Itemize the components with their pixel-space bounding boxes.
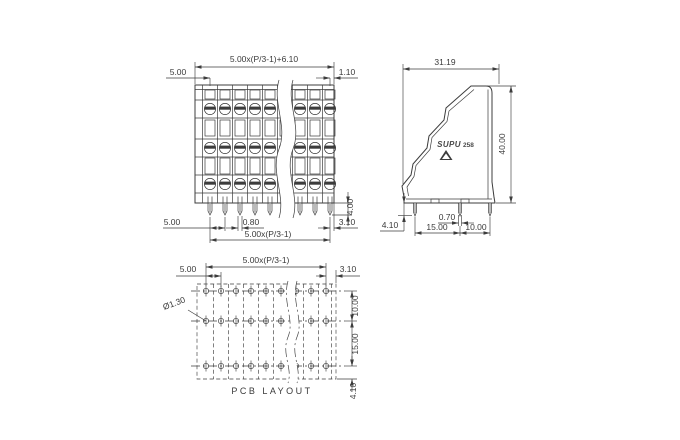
dim-depth: 31.19 xyxy=(434,57,456,67)
model-label: 258 xyxy=(463,142,474,149)
dim-row-gap-top: 10.00 xyxy=(350,295,360,317)
dim-hole-span: 5.00x(P/3-1) xyxy=(243,255,290,265)
pcb-hole xyxy=(218,316,223,327)
terminal-column xyxy=(219,90,230,215)
terminal-column xyxy=(294,90,305,215)
terminal-column xyxy=(309,90,320,215)
technical-drawing-sheet: 5.00x(P/3-1)+6.10 5.00 1.10 5.00 0.80 3.… xyxy=(0,0,680,440)
dim-pin-spacing-b: 10.00 xyxy=(465,222,487,232)
side-pin xyxy=(459,203,462,216)
dim-pin-span: 5.00x(P/3-1) xyxy=(245,229,292,239)
brand-label: SUPU xyxy=(437,140,461,149)
terminal-column xyxy=(264,90,275,215)
column-separators xyxy=(203,85,323,203)
side-pin xyxy=(489,203,492,216)
dim-pin-pitch: 5.00 xyxy=(164,217,181,227)
pcb-layout: 5.00x(P/3-1) 5.00 3.10 Ø1.30 10.00 15.00… xyxy=(161,255,360,399)
pcb-holes-row-2 xyxy=(203,316,328,327)
dim-pin-spacing-a: 15.00 xyxy=(426,222,448,232)
dim-pin-width: 0.80 xyxy=(243,217,260,227)
dim-pin-width-side: 0.70 xyxy=(439,212,456,222)
pcb-layout-title: PCB LAYOUT xyxy=(231,386,312,396)
dim-bottom-margin: 4.10 xyxy=(348,382,358,399)
dim-left-margin: 5.00 xyxy=(170,67,187,77)
pcb-dimensions: 5.00x(P/3-1) 5.00 3.10 Ø1.30 10.00 15.00… xyxy=(161,255,360,399)
dim-pin-length-side: 4.10 xyxy=(382,220,399,230)
front-view: 5.00x(P/3-1)+6.10 5.00 1.10 5.00 0.80 3.… xyxy=(163,54,358,243)
terminal-column xyxy=(204,90,215,215)
dim-height: 40.00 xyxy=(497,133,507,155)
pcb-column-lines xyxy=(214,284,332,379)
dim-pin-length: 4.00 xyxy=(345,198,355,215)
side-view: SUPU 258 31.19 40.00 0.70 15.00 10.00 4. xyxy=(380,57,516,236)
pcb-hole xyxy=(218,361,223,372)
pcb-holes-row-3 xyxy=(203,361,328,372)
dim-row-gap-bottom: 15.00 xyxy=(350,333,360,355)
drawing-canvas: 5.00x(P/3-1)+6.10 5.00 1.10 5.00 0.80 3.… xyxy=(0,0,680,440)
pcb-holes-row-1 xyxy=(203,286,328,297)
dim-last-pin-to-edge: 3.10 xyxy=(339,217,356,227)
dim-hole-pitch: 5.00 xyxy=(180,264,197,274)
dim-hole-diameter: Ø1.30 xyxy=(161,294,186,311)
dim-overall-width: 5.00x(P/3-1)+6.10 xyxy=(230,54,299,64)
dim-right-margin: 1.10 xyxy=(339,67,356,77)
side-pin xyxy=(414,203,417,216)
terminal-column xyxy=(234,90,245,215)
terminal-column xyxy=(249,90,260,215)
pcb-hole xyxy=(218,286,223,297)
dim-right-margin-pcb: 3.10 xyxy=(340,264,357,274)
pcb-break-band xyxy=(286,281,299,383)
